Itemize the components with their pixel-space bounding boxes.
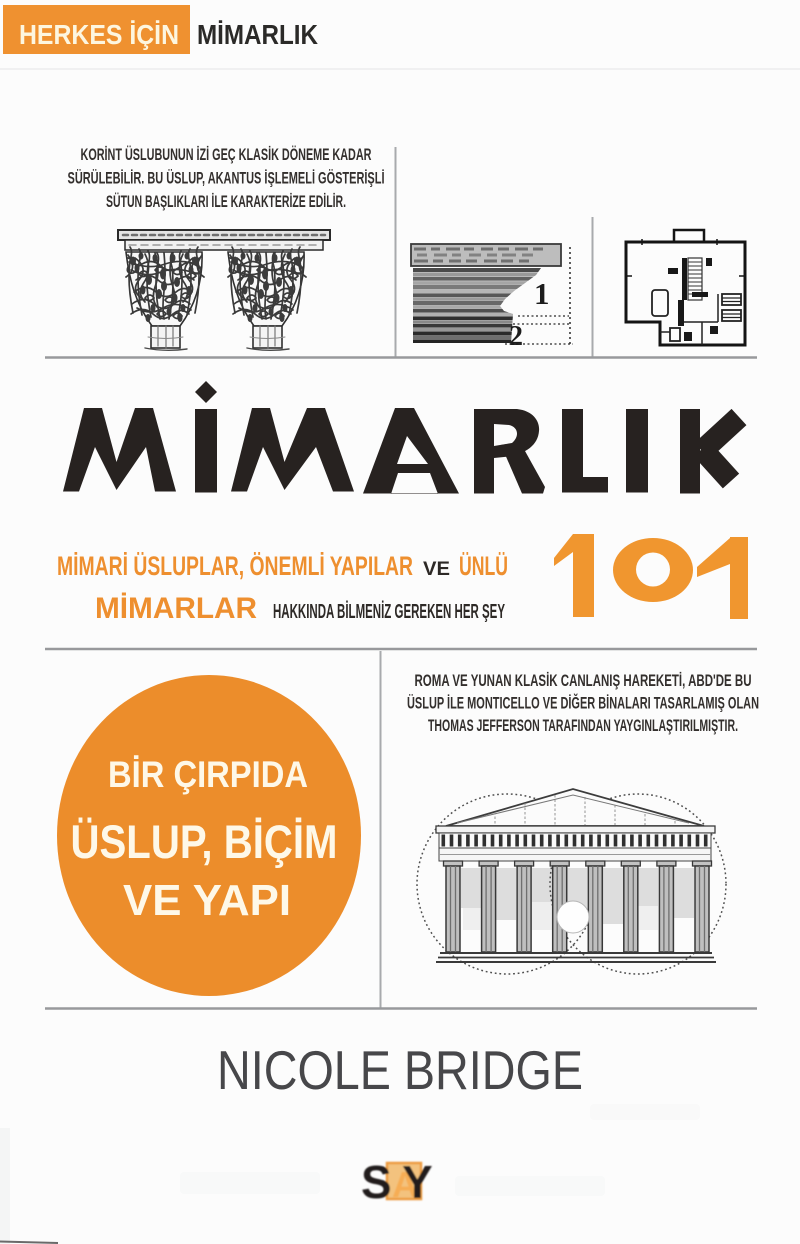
svg-text:S: S xyxy=(361,1156,392,1208)
svg-text:1: 1 xyxy=(534,276,550,311)
svg-text:ÜSLUP İLE MONTICELLO VE DİĞER: ÜSLUP İLE MONTICELLO VE DİĞER BİNALARI T… xyxy=(407,694,759,713)
svg-text:2: 2 xyxy=(509,321,523,352)
svg-text:ROMA VE YUNAN KLASİK CANLANIŞ: ROMA VE YUNAN KLASİK CANLANIŞ HAREKETİ, … xyxy=(415,671,752,690)
svg-text:ÜNLÜ: ÜNLÜ xyxy=(459,551,508,581)
svg-text:HERKES İÇİN: HERKES İÇİN xyxy=(19,19,179,50)
svg-text:SÜRÜLEBİLİR. BU ÜSLUP, AKANTUS: SÜRÜLEBİLİR. BU ÜSLUP, AKANTUS İŞLEMELİ … xyxy=(68,169,385,188)
svg-text:MİMARİ ÜSLUPLAR, ÖNEMLİ YAPILA: MİMARİ ÜSLUPLAR, ÖNEMLİ YAPILAR xyxy=(57,551,413,581)
svg-text:VE YAPI: VE YAPI xyxy=(123,876,291,925)
svg-text:BİR ÇIRPIDA: BİR ÇIRPIDA xyxy=(108,754,308,795)
svg-text:Y: Y xyxy=(402,1156,433,1208)
svg-text:KORİNT ÜSLUBUNUN İZİ GEÇ KLASİ: KORİNT ÜSLUBUNUN İZİ GEÇ KLASİK DÖNEME K… xyxy=(81,145,372,164)
svg-text:MİMARLAR: MİMARLAR xyxy=(95,592,257,625)
svg-text:SÜTUN BAŞLIKLARI İLE KARAKTERİ: SÜTUN BAŞLIKLARI İLE KARAKTERİZE EDİLİR. xyxy=(106,192,346,211)
svg-text:NICOLE BRIDGE: NICOLE BRIDGE xyxy=(217,1039,583,1101)
svg-text:HAKKINDA BİLMENİZ GEREKEN HER: HAKKINDA BİLMENİZ GEREKEN HER ŞEY xyxy=(273,600,505,623)
svg-text:VE: VE xyxy=(423,559,450,580)
svg-text:THOMAS JEFFERSON TARAFINDAN YA: THOMAS JEFFERSON TARAFINDAN YAYGINLAŞTIR… xyxy=(428,716,738,735)
svg-text:MİMARLIK: MİMARLIK xyxy=(197,19,318,50)
svg-text:ÜSLUP, BİÇİM: ÜSLUP, BİÇİM xyxy=(71,815,338,868)
